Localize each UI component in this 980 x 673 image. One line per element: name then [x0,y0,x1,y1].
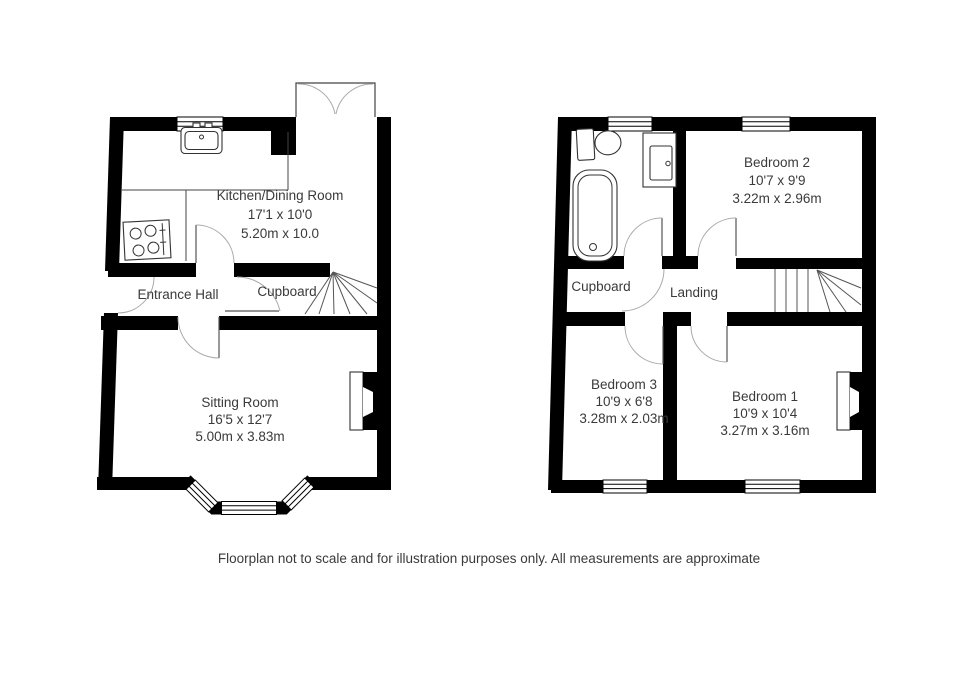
wall [548,117,572,490]
room-label-bedroom3: Bedroom 3 [591,377,657,392]
room-label-kitchen: Kitchen/Dining Room [217,188,344,203]
french-doors [296,83,375,117]
ground-floor-plan: Kitchen/Dining Room 17'1 x 10'0 5.20m x … [97,83,391,515]
room-label-entrance-hall: Entrance Hall [137,287,218,302]
bathroom-window [608,117,652,131]
basin-icon [643,133,676,187]
wall [554,312,625,326]
fireplace-bedroom1 [837,372,862,430]
wall [219,316,391,330]
room-label-bedroom2: Bedroom 2 [744,155,810,170]
kitchen-door [196,225,234,263]
bathroom-door [624,218,662,256]
stove-icon [123,220,171,260]
wall [377,117,391,490]
wall [652,117,742,131]
wall [101,316,178,330]
room-label-cupboard-ground: Cupboard [257,284,316,299]
wall [736,258,862,269]
wall [110,117,177,131]
bedroom2-door [698,218,736,256]
wall [105,117,124,271]
room-label-bedroom1: Bedroom 1 [732,389,798,404]
disclaimer-caption: Floorplan not to scale and for illustrat… [218,551,760,566]
room-label-landing: Landing [670,285,718,300]
wall [551,480,603,493]
room-dims-metric-bedroom2: 3.22m x 2.96m [732,191,821,206]
floorplan-drawing: Kitchen/Dining Room 17'1 x 10'0 5.20m x … [0,0,980,673]
room-dims-imperial-kitchen: 17'1 x 10'0 [248,207,312,222]
room-dims-imperial-bedroom3: 10'9 x 6'8 [596,394,653,409]
wall [727,312,876,326]
wall [306,477,391,490]
stairs-first [775,269,861,312]
bath-icon [573,170,617,261]
room-dims-metric-sitting-room: 5.00m x 3.83m [195,429,284,444]
wall [662,256,698,269]
wall [647,480,745,493]
room-dims-imperial-bedroom2: 10'7 x 9'9 [749,173,806,188]
wall [862,117,876,493]
toilet-icon [576,127,622,160]
bedroom1-window [745,480,800,493]
wall [234,263,330,277]
room-dims-imperial-bedroom1: 10'9 x 10'4 [733,406,798,421]
room-dims-metric-kitchen: 5.20m x 10.0 [241,226,319,241]
bay-window [186,478,314,514]
wall [98,313,118,490]
bedroom1-door [691,326,727,362]
bedroom3-door [625,326,663,364]
wall [97,477,190,490]
wall [800,480,876,493]
bedroom3-window [603,480,647,493]
room-label-sitting-room: Sitting Room [201,395,278,410]
floorplan-page: Kitchen/Dining Room 17'1 x 10'0 5.20m x … [0,0,980,673]
room-dims-metric-bedroom3: 3.28m x 2.03m [579,411,668,426]
sitting-room-door [178,317,219,358]
room-dims-imperial-sitting-room: 16'5 x 12'7 [208,412,272,427]
bedroom2-window [742,117,790,131]
wall [271,117,296,155]
first-floor-plan: Bedroom 2 10'7 x 9'9 3.22m x 2.96m Cupbo… [548,117,876,493]
room-dims-metric-bedroom1: 3.27m x 3.16m [720,423,809,438]
kitchen-sink-icon [181,123,222,154]
wall [663,312,677,481]
room-label-cupboard-first: Cupboard [571,279,630,294]
fireplace-sitting-room [350,372,377,430]
wall [108,263,196,277]
